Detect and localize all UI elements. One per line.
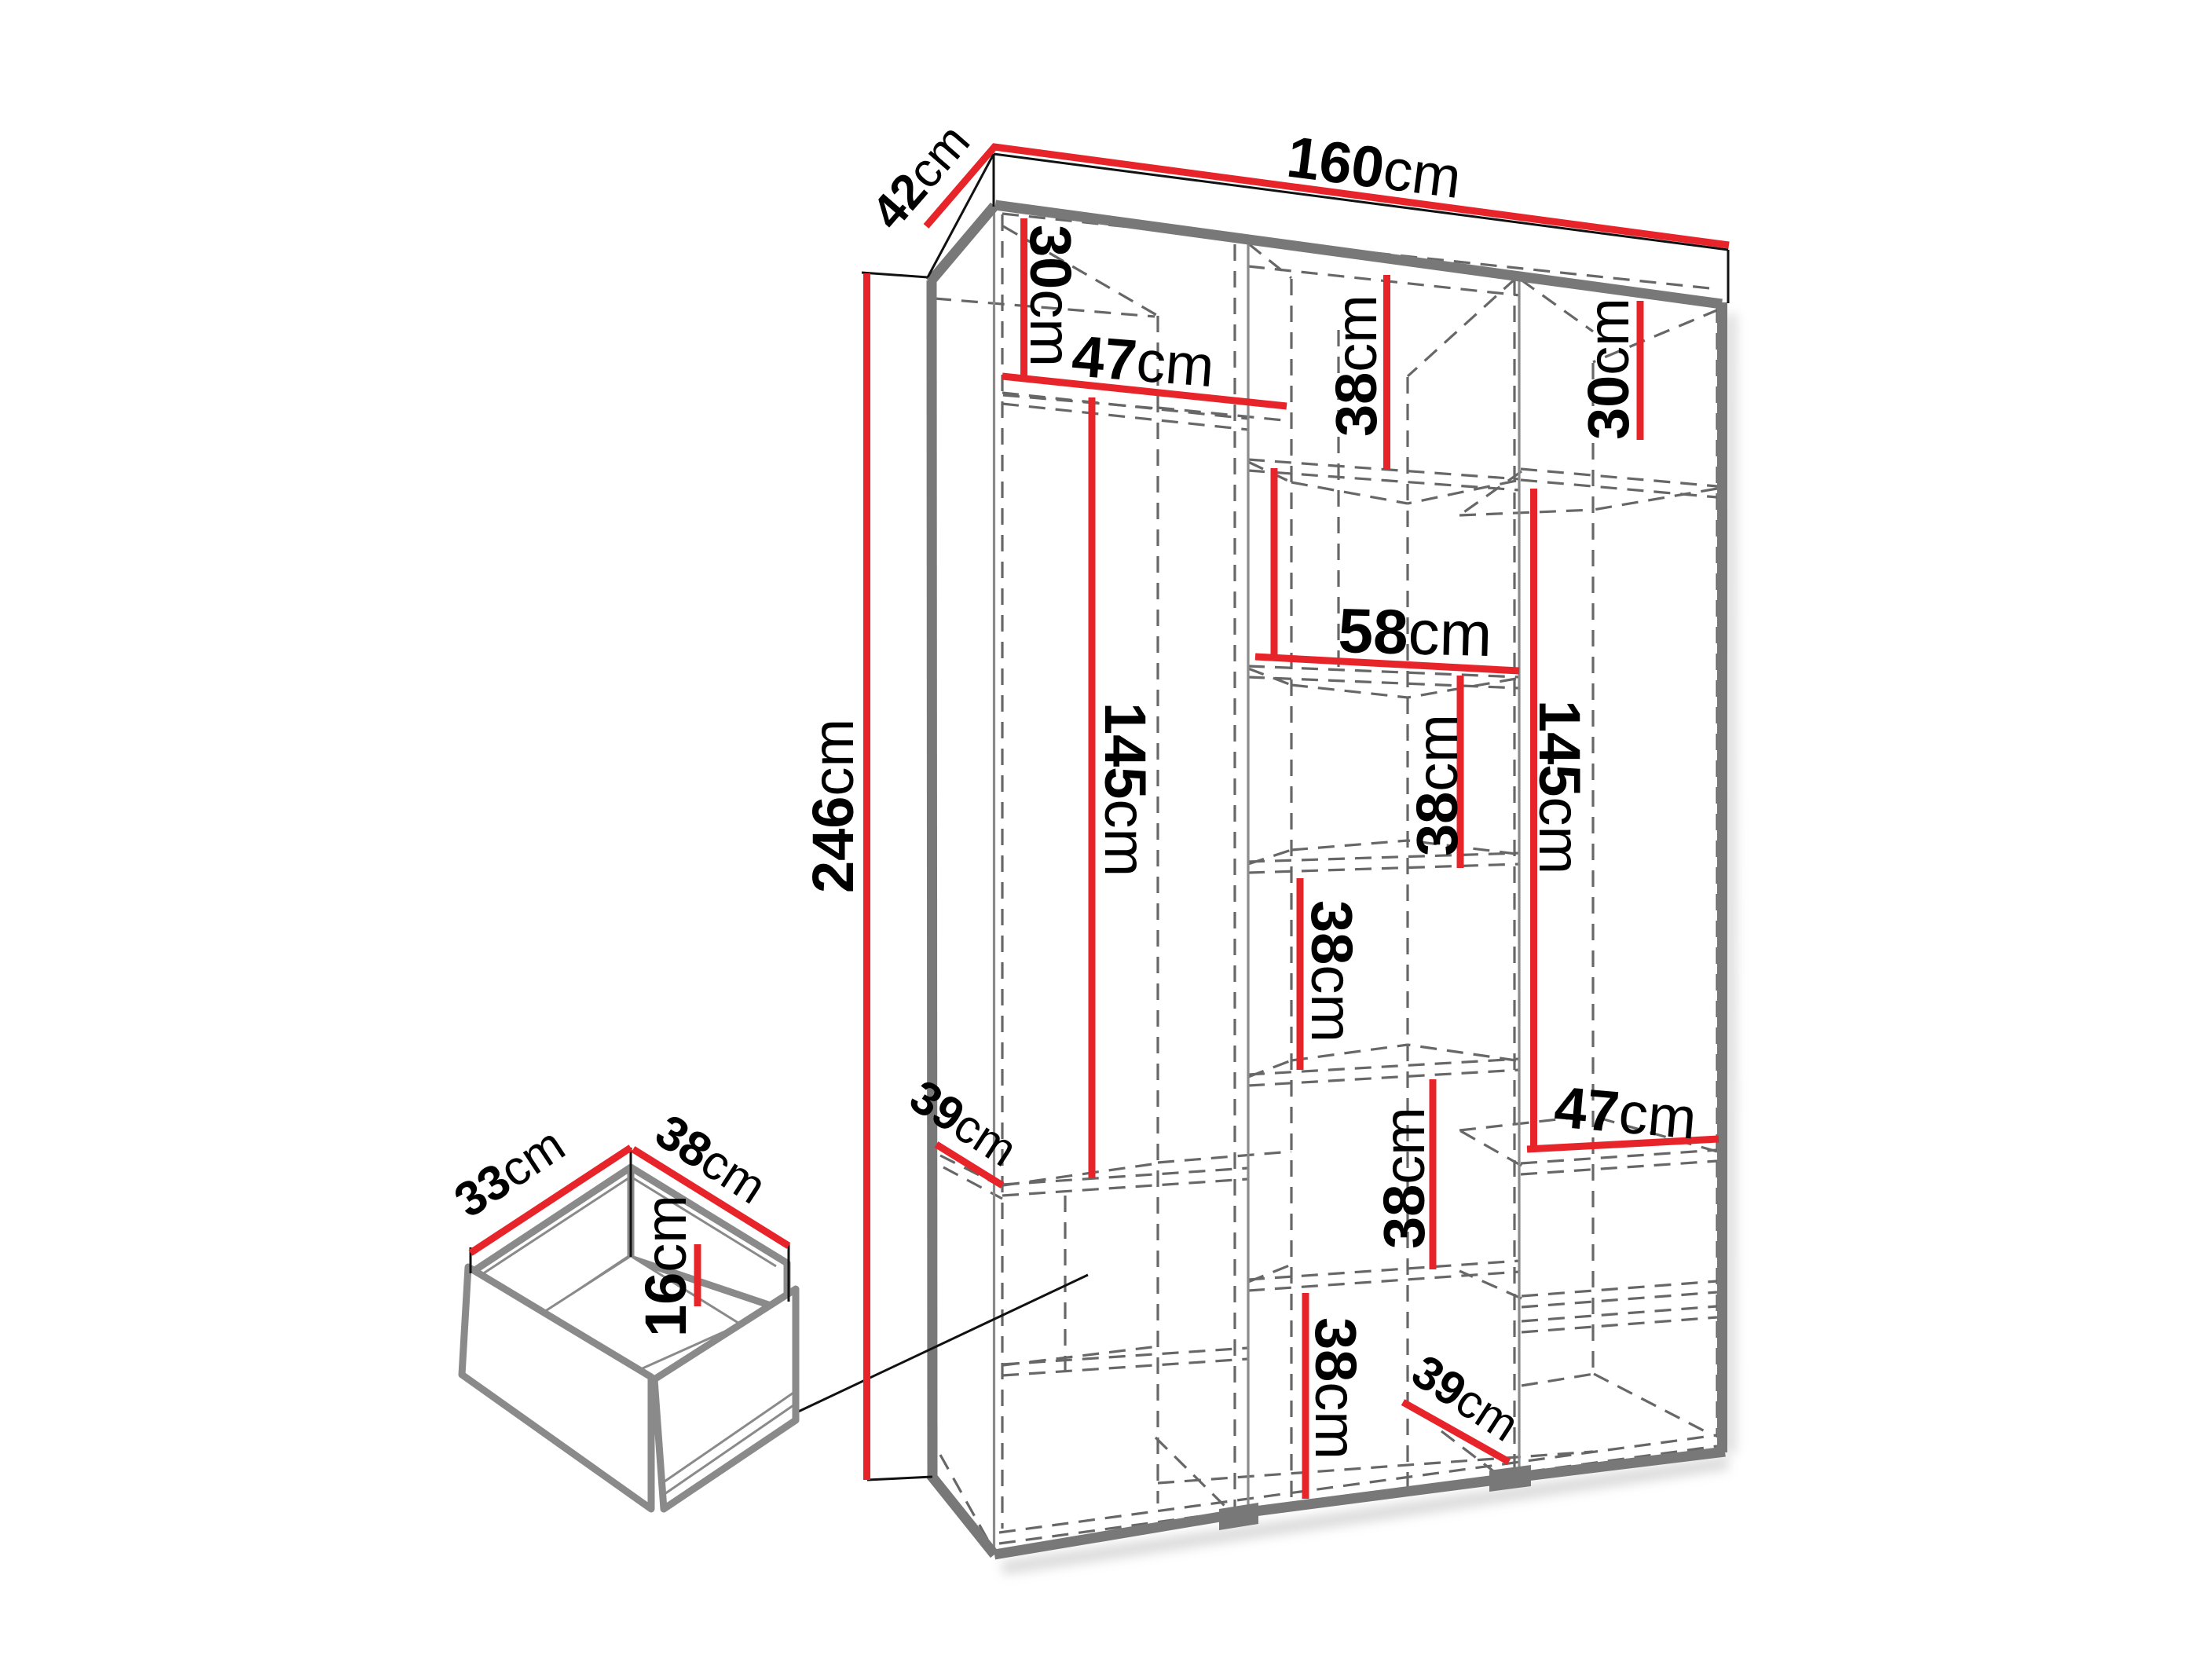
svg-text:30cm: 30cm — [1576, 298, 1641, 440]
svg-text:145cm: 145cm — [1093, 702, 1158, 877]
svg-text:47cm: 47cm — [1070, 323, 1217, 399]
svg-text:38cm: 38cm — [1299, 900, 1364, 1042]
svg-text:38cm: 38cm — [1372, 1107, 1437, 1249]
svg-text:47cm: 47cm — [1552, 1074, 1700, 1151]
svg-text:58cm: 58cm — [1338, 595, 1493, 669]
svg-text:246cm: 246cm — [800, 719, 866, 893]
svg-text:145cm: 145cm — [1527, 700, 1592, 874]
svg-text:16cm: 16cm — [633, 1195, 698, 1337]
svg-text:38cm: 38cm — [1404, 714, 1470, 856]
svg-text:38cm: 38cm — [1303, 1317, 1368, 1459]
svg-text:38cm: 38cm — [1324, 295, 1389, 437]
